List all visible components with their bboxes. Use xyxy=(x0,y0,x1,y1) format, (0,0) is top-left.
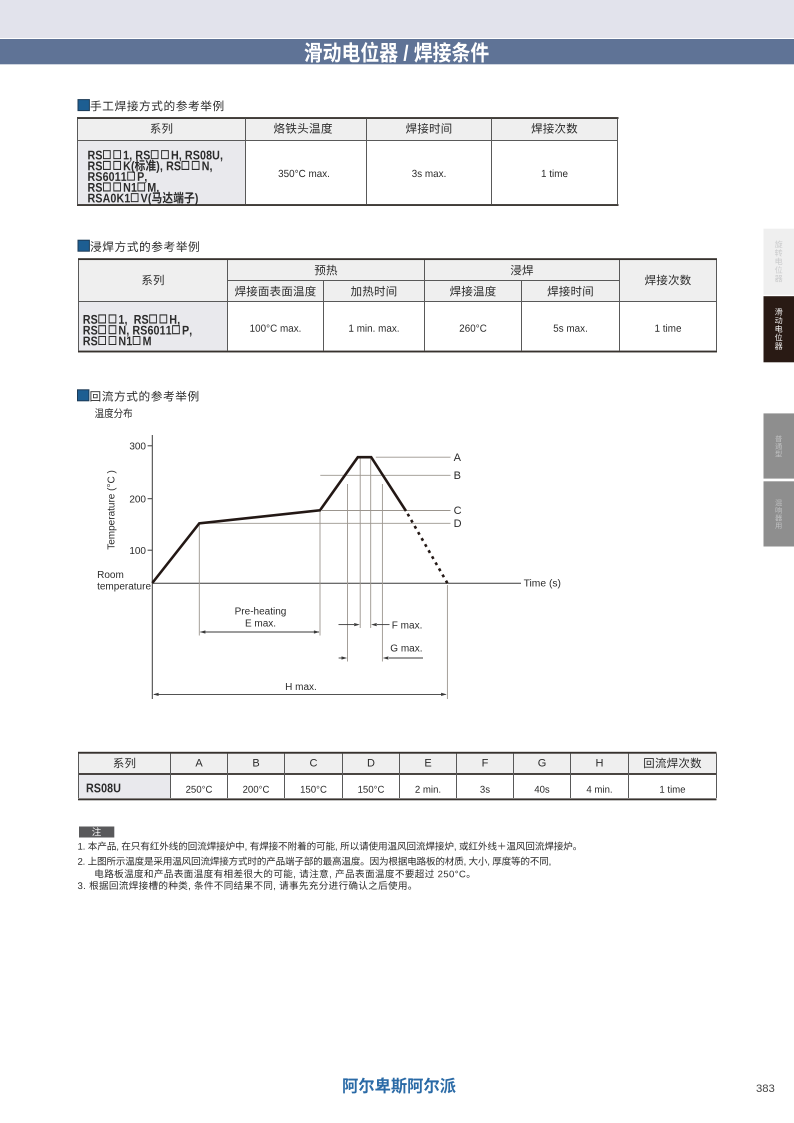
svg-text:B: B xyxy=(252,758,259,770)
svg-text:E max.: E max. xyxy=(245,618,276,629)
svg-text:D: D xyxy=(454,518,462,530)
svg-text:Temperature (°C ): Temperature (°C ) xyxy=(107,470,118,550)
svg-text:383: 383 xyxy=(756,1083,775,1095)
svg-text:H: H xyxy=(596,758,604,770)
svg-text:D: D xyxy=(367,758,375,770)
svg-text:300: 300 xyxy=(129,441,146,452)
svg-text:G: G xyxy=(538,758,547,770)
svg-text:F max.: F max. xyxy=(392,621,423,632)
svg-text:A: A xyxy=(195,758,203,770)
svg-text:B: B xyxy=(454,470,461,482)
svg-text:temperature: temperature xyxy=(97,582,151,593)
svg-text:F: F xyxy=(482,758,489,770)
svg-text:C: C xyxy=(454,505,462,517)
svg-text:G max.: G max. xyxy=(390,644,422,655)
svg-text:Room: Room xyxy=(97,570,124,581)
svg-text:200: 200 xyxy=(129,494,146,505)
svg-text:Time (s): Time (s) xyxy=(524,579,561,590)
svg-text:E: E xyxy=(424,758,431,770)
svg-text:A: A xyxy=(454,452,462,464)
svg-text:100: 100 xyxy=(129,546,146,557)
svg-text:H max.: H max. xyxy=(285,682,317,693)
svg-text:Pre-heating: Pre-heating xyxy=(235,606,287,617)
svg-text:C: C xyxy=(310,758,318,770)
